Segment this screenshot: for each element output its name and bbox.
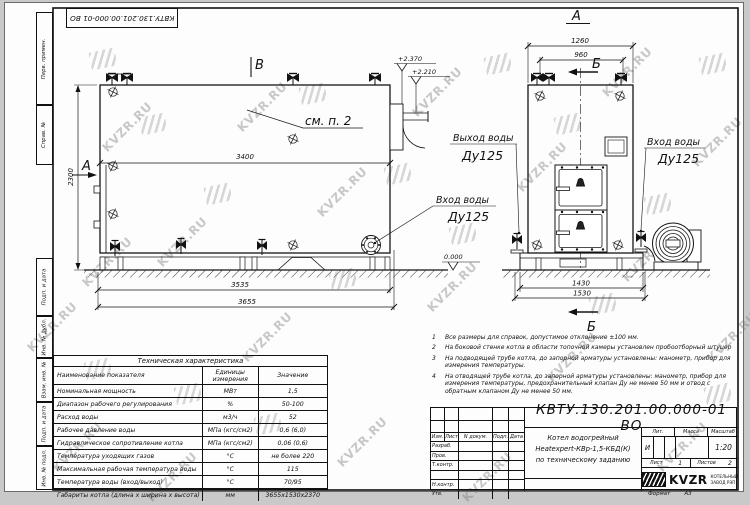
margin-stamp-label: Взам. инв. № bbox=[42, 362, 48, 399]
row-name: Гидравлическое сопротивление котла bbox=[54, 437, 202, 449]
col-izm: Изм. bbox=[431, 433, 445, 441]
furnace-doors bbox=[555, 165, 607, 252]
company-name-line1: КОТЕЛЬНЫЙ bbox=[711, 474, 738, 479]
sheets-number: 2 bbox=[728, 460, 732, 467]
row-name: Температура уходящих газов bbox=[54, 450, 202, 462]
company-name-line2: ЗАВОД РЭП bbox=[711, 480, 738, 485]
section-mark-a: А bbox=[81, 159, 91, 174]
row-units: % bbox=[202, 398, 258, 410]
note-text: Все размеры для справок, допустимое откл… bbox=[445, 334, 639, 342]
dim-1260: 1260 bbox=[571, 37, 589, 45]
dim-2300: 2300 bbox=[67, 168, 75, 186]
row-value: 70/95 bbox=[258, 476, 327, 488]
outlet-dn: Ду125 bbox=[461, 148, 503, 163]
note-item: 1Все размеры для справок, допустимое отк… bbox=[432, 334, 732, 342]
product-title: Котел водогрейный Heatexpert-КВр-1,5-КБД… bbox=[524, 428, 641, 478]
tech-characteristics-table: Техническая характеристика Наименование … bbox=[53, 355, 328, 490]
row-name: Номинальная мощность bbox=[54, 385, 202, 397]
sheet-row: Лист 1 Листов 2 bbox=[641, 459, 738, 468]
scale-label: Масштаб bbox=[708, 428, 738, 436]
row-value: 52 bbox=[258, 411, 327, 423]
margin-stamp-label: Перв. примен. bbox=[42, 38, 48, 78]
side-view bbox=[84, 74, 448, 278]
note-item: 4На отводящей трубе котла, до запорной а… bbox=[432, 373, 732, 396]
margin-stamp: Инв. № подл. bbox=[36, 446, 53, 490]
margin-stamp-label: Инв. № дубл. bbox=[42, 319, 48, 356]
row-name: Диапазон рабочего регулирования bbox=[54, 398, 202, 410]
col-header-units: Единицы измерения bbox=[202, 367, 258, 384]
table-row: Гидравлическое сопротивление котлаМПа (к… bbox=[54, 436, 327, 449]
see-item-callout: см. п. 2 bbox=[305, 114, 351, 128]
format-label: Формат А3 bbox=[648, 491, 748, 497]
lit-label: Лит. bbox=[642, 428, 675, 436]
document-number: КВТУ.130.201.00.000-01 ВО bbox=[524, 408, 738, 428]
row-units: МПа (кгс/см2) bbox=[202, 437, 258, 449]
inlet-dn: Ду125 bbox=[447, 209, 489, 224]
section-mark-b: В bbox=[255, 58, 264, 73]
table-row: Номинальная мощностьМВт1,5 bbox=[54, 384, 327, 397]
level-2370: +2.370 bbox=[398, 55, 422, 63]
margin-stamp: Подп. и дата bbox=[36, 258, 53, 316]
row-units: °С bbox=[202, 476, 258, 488]
dim-3655: 3655 bbox=[238, 298, 256, 306]
corner-stamp-number: КВТУ.130.201.00.000-01 ВО bbox=[70, 14, 174, 23]
row-name: Максимальная рабочая температура воды bbox=[54, 463, 202, 475]
row-tkontr: Т.контр. bbox=[431, 461, 459, 470]
lifting-marks bbox=[105, 84, 301, 253]
row-value: 0,06 (0,6) bbox=[258, 437, 327, 449]
row-value: 50-100 bbox=[258, 398, 327, 410]
dim-3535: 3535 bbox=[231, 281, 249, 289]
lit-mass-scale-header: Лит. Масса Масштаб bbox=[641, 428, 738, 437]
table-row: Расход водым3/ч52 bbox=[54, 410, 327, 423]
format-word: Формат bbox=[648, 491, 670, 497]
kvzr-logo-text: KVZR bbox=[669, 473, 708, 487]
blower-fan bbox=[653, 223, 702, 270]
format-value: А3 bbox=[684, 491, 691, 497]
lit-value: И bbox=[642, 437, 654, 458]
row-value: 115 bbox=[258, 463, 327, 475]
note-number: 1 bbox=[432, 334, 445, 342]
sheet-label: Лист bbox=[650, 460, 663, 466]
note-number: 3 bbox=[432, 355, 445, 371]
table-row: Рабочее давление водыМПа (кгс/см2)0,6 (6… bbox=[54, 423, 327, 436]
margin-stamp-label: Справ. № bbox=[42, 122, 48, 148]
view-a-title: А bbox=[571, 9, 581, 24]
product-title-line1: Котел водогрейный bbox=[547, 433, 618, 444]
margin-stamp: Справ. № bbox=[36, 105, 53, 165]
note-text: На подводящей трубе котла, до запорной а… bbox=[445, 355, 732, 371]
product-title-line2: Heatexpert-КВр-1,5-КБД(К) bbox=[535, 444, 630, 455]
margin-stamp: Перв. примен. bbox=[36, 12, 53, 105]
title-block-left: Изм. Лист N докум. Подп. Дата Разраб. Пр… bbox=[431, 408, 524, 491]
note-number: 2 bbox=[432, 344, 445, 352]
product-title-line3: по техническому заданию bbox=[536, 455, 631, 466]
row-prov: Пров. bbox=[431, 452, 459, 461]
col-doc: N докум. bbox=[459, 433, 493, 441]
sheets-label: Листов bbox=[697, 460, 716, 466]
table-row: Габариты котла (длина х ширина х высота)… bbox=[54, 488, 327, 501]
note-text: На отводящей трубе котла, до запорной ар… bbox=[445, 373, 732, 396]
row-name: Рабочее давление воды bbox=[54, 424, 202, 436]
lit-mass-scale-values: И 1:20 bbox=[641, 437, 738, 459]
company-logo-cell: KVZR КОТЕЛЬНЫЙ ЗАВОД РЭП bbox=[641, 468, 738, 491]
level-zero: 0.000 bbox=[444, 253, 463, 261]
dim-1530: 1530 bbox=[573, 290, 591, 298]
table-row: Температура уходящих газов°Сне более 220 bbox=[54, 449, 327, 462]
scale-value: 1:20 bbox=[709, 437, 738, 458]
section-b-top: Б bbox=[592, 57, 601, 72]
title-block-empty-cell bbox=[524, 478, 641, 491]
inlet-dn-right: Ду125 bbox=[657, 151, 699, 166]
notes-list: 1Все размеры для справок, допустимое отк… bbox=[432, 334, 732, 399]
dim-3400: 3400 bbox=[236, 153, 254, 161]
margin-stamp: Взам. инв. № bbox=[36, 358, 53, 402]
row-value: не более 220 bbox=[258, 450, 327, 462]
table-row: Температура воды (вход/выход)°С70/95 bbox=[54, 475, 327, 488]
mass-value bbox=[676, 437, 709, 458]
title-block: Изм. Лист N докум. Подп. Дата Разраб. Пр… bbox=[430, 407, 737, 490]
col-podp: Подп. bbox=[493, 433, 509, 441]
col-data: Дата bbox=[509, 433, 524, 441]
col-list: Лист bbox=[445, 433, 459, 441]
row-units: °С bbox=[202, 450, 258, 462]
row-units: м3/ч bbox=[202, 411, 258, 423]
note-text: На боковой стенке котла в области топочн… bbox=[445, 344, 731, 352]
row-razrab: Разраб. bbox=[431, 442, 459, 451]
table-row: Максимальная рабочая температура воды°С1… bbox=[54, 462, 327, 475]
dim-960: 960 bbox=[574, 51, 588, 59]
tech-table-header: Наименование показателя Единицы измерени… bbox=[54, 366, 327, 384]
flue-outlet bbox=[390, 104, 428, 150]
row-units: МВт bbox=[202, 385, 258, 397]
margin-stamp: Подп. и дата bbox=[36, 402, 53, 446]
sheet-number: 1 bbox=[678, 460, 682, 467]
row-value: 3655х1530х2370 bbox=[258, 489, 327, 501]
row-name: Габариты котла (длина х ширина х высота) bbox=[54, 489, 202, 501]
row-units: МПа (кгс/см2) bbox=[202, 424, 258, 436]
drawing-sheet-page: { "watermark": "KVZR.RU", "corner_stamp"… bbox=[0, 0, 750, 500]
col-header-name: Наименование показателя bbox=[54, 367, 202, 384]
note-item: 2На боковой стенке котла в области топоч… bbox=[432, 344, 732, 352]
margin-stamp-label: Подп. и дата bbox=[42, 406, 48, 443]
kvzr-logo-mark bbox=[642, 472, 666, 487]
outlet-label: Выход воды bbox=[453, 133, 514, 144]
col-header-value: Значение bbox=[258, 367, 327, 384]
note-item: 3На подводящей трубе котла, до запорной … bbox=[432, 355, 732, 371]
section-b-bottom: Б bbox=[587, 320, 596, 335]
water-inlet-flange bbox=[362, 236, 381, 255]
row-utv: Утв. bbox=[431, 490, 459, 499]
company-name: КОТЕЛЬНЫЙ ЗАВОД РЭП bbox=[711, 474, 738, 484]
corner-stamp: КВТУ.130.201.00.000-01 ВО bbox=[66, 8, 178, 28]
inlet-label-right: Вход воды bbox=[647, 137, 701, 148]
margin-stamp: Инв. № дубл. bbox=[36, 316, 53, 358]
row-units: мм bbox=[202, 489, 258, 501]
row-value: 1,5 bbox=[258, 385, 327, 397]
row-nkontr: Н.контр. bbox=[431, 480, 459, 489]
dim-1430: 1430 bbox=[572, 280, 590, 288]
level-2210: +2.210 bbox=[412, 68, 436, 76]
note-number: 4 bbox=[432, 373, 445, 396]
inlet-label: Вход воды bbox=[436, 195, 490, 206]
row-units: °С bbox=[202, 463, 258, 475]
table-row: Диапазон рабочего регулирования%50-100 bbox=[54, 397, 327, 410]
row-name: Расход воды bbox=[54, 411, 202, 423]
mass-label: Масса bbox=[675, 428, 708, 436]
margin-stamp-label: Инв. № подл. bbox=[42, 449, 48, 486]
tech-table-title: Техническая характеристика bbox=[54, 356, 327, 366]
row-value: 0,6 (6,0) bbox=[258, 424, 327, 436]
margin-stamp-label: Подп. и дата bbox=[42, 269, 48, 306]
row-name: Температура воды (вход/выход) bbox=[54, 476, 202, 488]
